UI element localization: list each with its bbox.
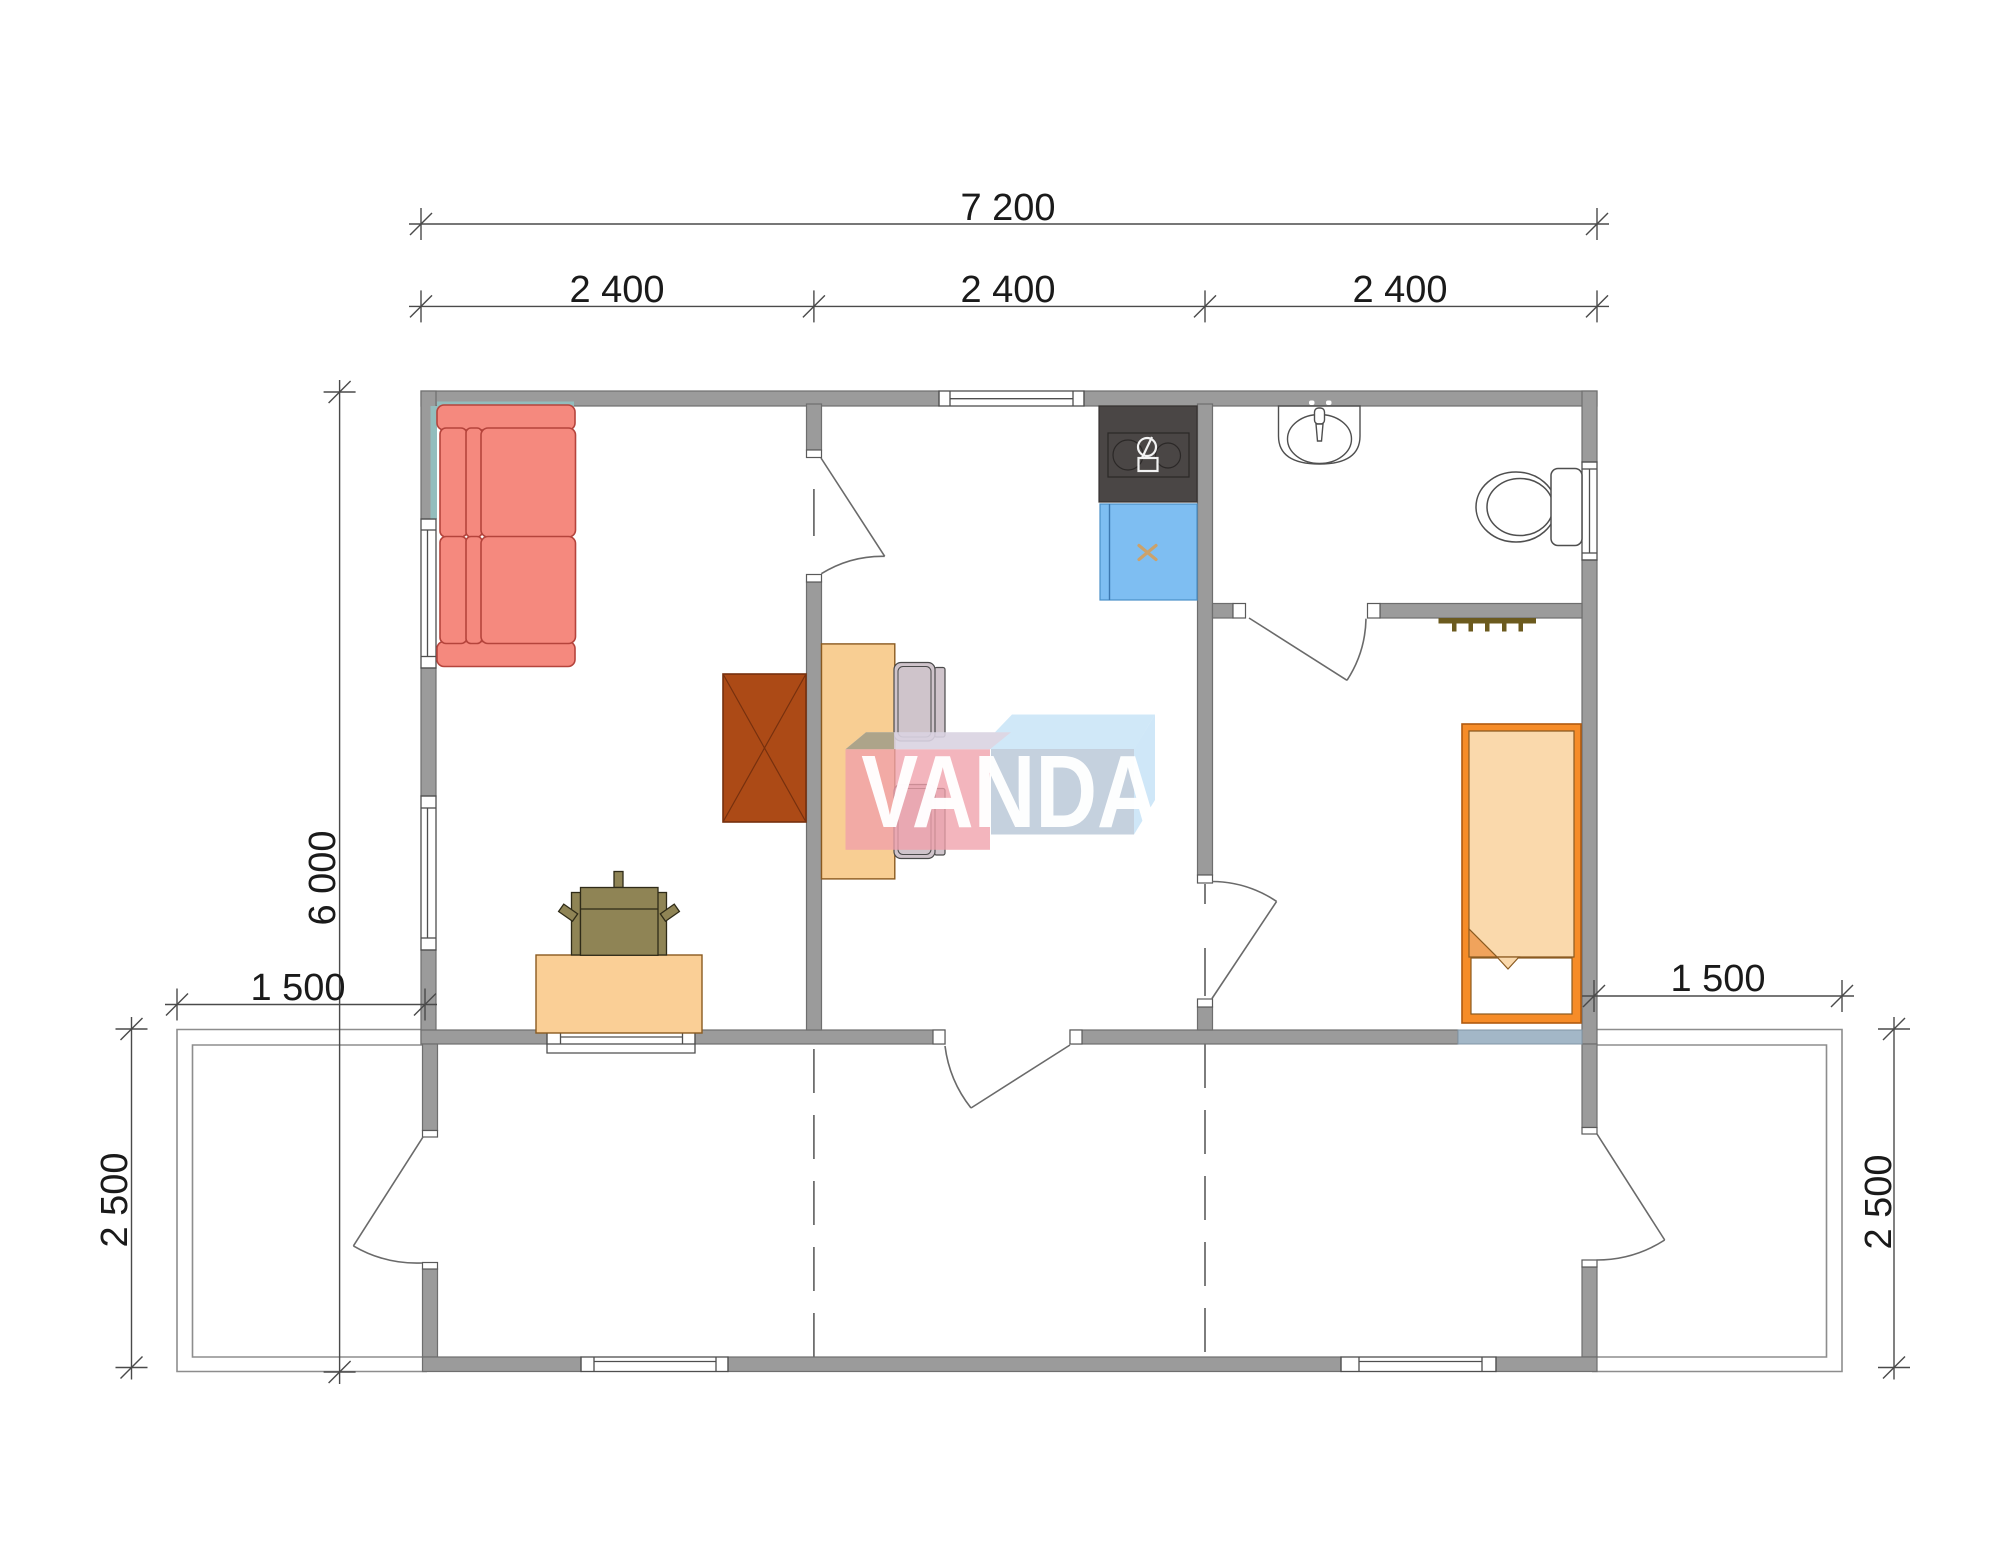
svg-text:2 400: 2 400 — [960, 269, 1055, 311]
svg-text:2 400: 2 400 — [569, 269, 664, 311]
svg-text:2 500: 2 500 — [94, 1152, 136, 1247]
svg-text:1 500: 1 500 — [250, 967, 345, 1009]
svg-text:2 500: 2 500 — [1858, 1154, 1900, 1249]
svg-text:6 000: 6 000 — [302, 830, 344, 925]
svg-text:7 200: 7 200 — [960, 187, 1055, 229]
svg-text:1 500: 1 500 — [1670, 958, 1765, 1000]
svg-text:VANDA: VANDA — [861, 735, 1159, 850]
svg-text:2 400: 2 400 — [1352, 269, 1447, 311]
